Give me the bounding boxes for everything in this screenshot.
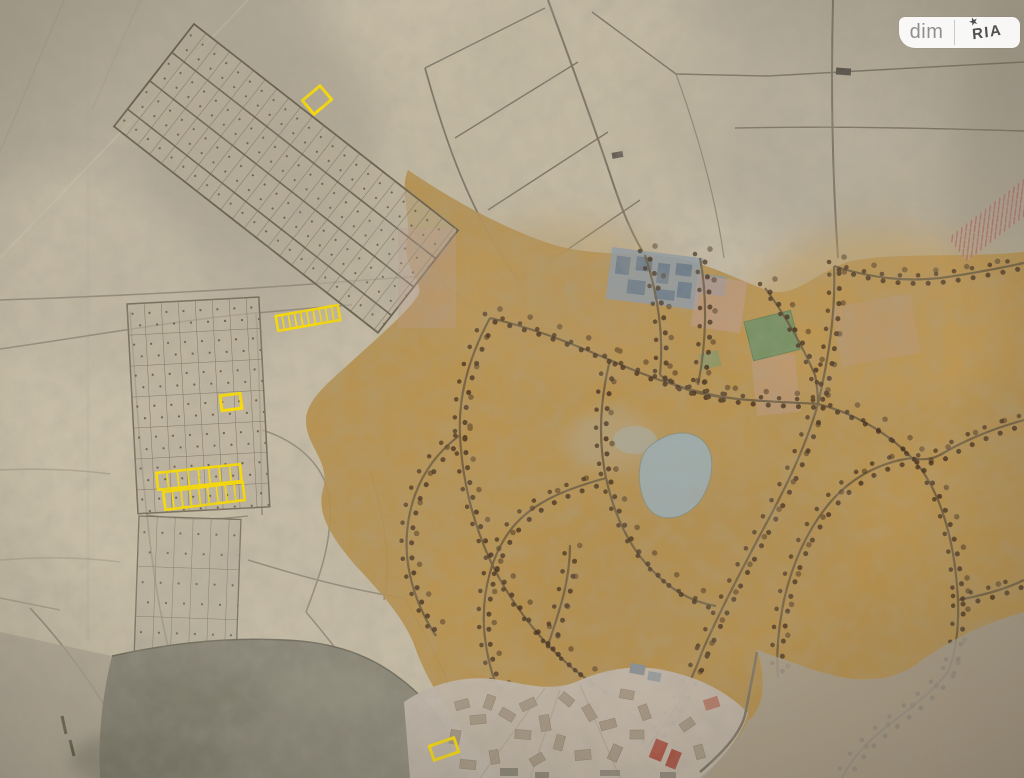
vignette-overlay [0,0,1024,778]
ria-label: RIA [972,22,1003,44]
listing-map-photo: dim ★ RIA [0,0,1024,778]
dim-ria-watermark: dim ★ RIA [899,17,1020,48]
ria-logo: ★ RIA [955,17,1020,48]
dim-label: dim [910,21,944,44]
dim-logo: dim [899,17,954,48]
master-plan-map [0,0,1024,778]
